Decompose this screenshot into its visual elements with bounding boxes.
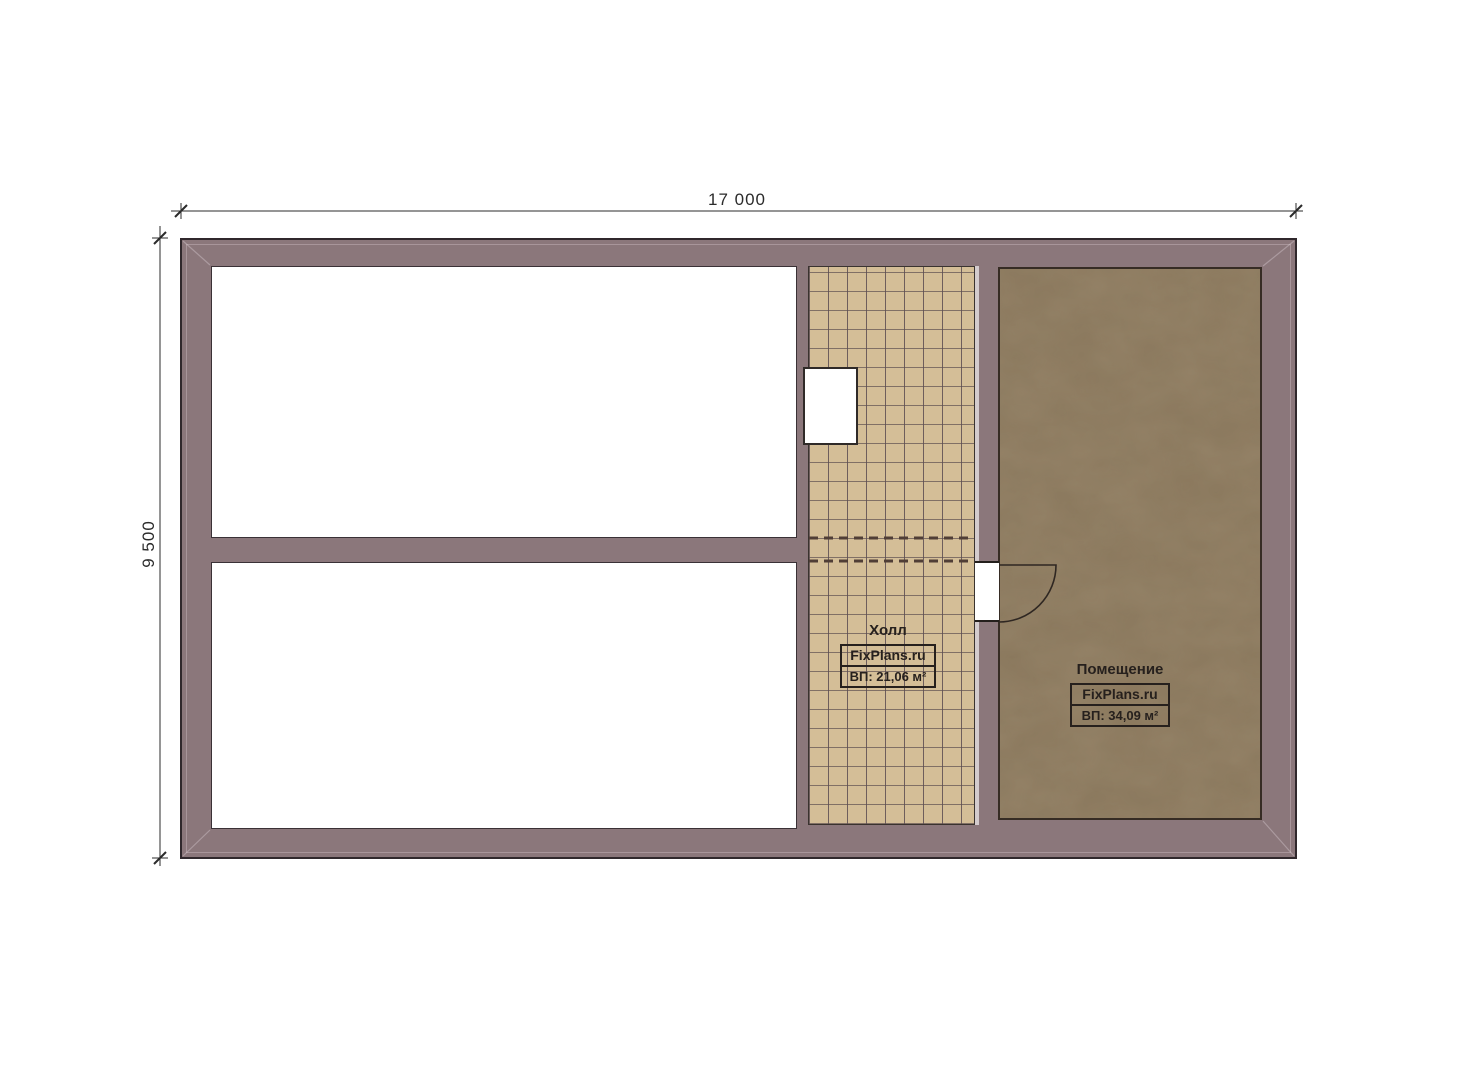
hall-label: Холл FixPlans.ru ВП: 21,06 м² xyxy=(808,622,968,688)
brand-text: FixPlans.ru xyxy=(842,646,935,665)
area-stamp-box: FixPlans.ru ВП: 21,06 м² xyxy=(840,644,937,688)
room-title: Помещение xyxy=(1040,661,1200,678)
main-room-label: Помещение FixPlans.ru ВП: 34,09 м² xyxy=(1040,661,1200,727)
chimney-hatch-box xyxy=(803,367,858,445)
room-title: Холл xyxy=(808,622,968,639)
dimension-top-label: 17 000 xyxy=(708,190,766,210)
dimension-tick xyxy=(154,232,166,244)
floor-texture xyxy=(1000,269,1260,818)
dimension-tick xyxy=(1290,205,1302,217)
area-text: ВП: 21,06 м² xyxy=(842,665,935,686)
area-stamp-box: FixPlans.ru ВП: 34,09 м² xyxy=(1070,683,1170,727)
floor-plan-canvas: 17 000 9 500 Холл FixPlans.ru ВП: 21,06 … xyxy=(0,0,1473,1080)
room-upper-left xyxy=(211,266,797,538)
door-opening xyxy=(975,561,999,622)
main-room-floor xyxy=(998,267,1262,820)
area-text: ВП: 34,09 м² xyxy=(1072,704,1168,725)
dimension-tick xyxy=(175,205,187,217)
room-lower-left xyxy=(211,562,797,829)
dimension-tick xyxy=(154,852,166,864)
hall-floor-tiles xyxy=(808,266,975,825)
dimension-left-label: 9 500 xyxy=(139,520,159,568)
brand-text: FixPlans.ru xyxy=(1072,685,1168,704)
